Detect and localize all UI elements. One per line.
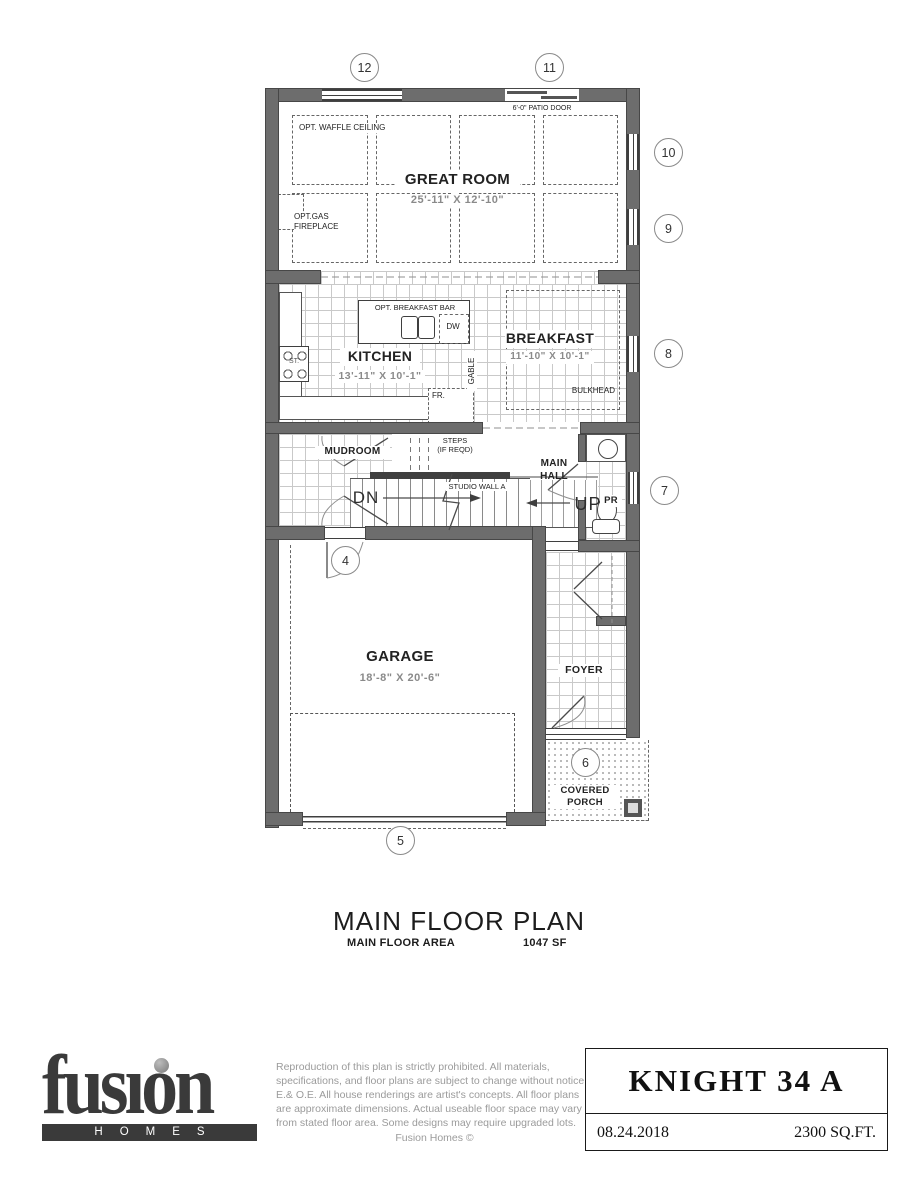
wall-mudroom-bottom-a: [265, 526, 325, 540]
great-room-opening-floor: [321, 271, 598, 284]
garage-column-line: [290, 545, 291, 710]
patio-door-label: 6'-0" PATIO DOOR: [500, 105, 584, 114]
plan-sqft: 2300 SQ.FT.: [794, 1124, 876, 1142]
wall-mudroom-bottom-b: [365, 526, 546, 540]
foyer-label: FOYER: [558, 664, 610, 677]
wall-garage-right: [532, 526, 546, 826]
wall-great-room-bottom-right: [598, 270, 640, 284]
logo-homes-bar: HOMES: [42, 1124, 257, 1141]
callout-12: 12: [350, 53, 379, 82]
copyright-text: Fusion Homes ©: [276, 1132, 593, 1146]
model-title-block: KNIGHT 34 A 08.24.2018 2300 SQ.FT.: [585, 1048, 888, 1151]
wall-garage-bottom-right: [506, 812, 546, 826]
kitchen-label: KITCHEN: [340, 348, 420, 366]
dishwasher-label: DW: [439, 322, 467, 332]
kitchen-bottom-counter: [279, 396, 430, 420]
wall-closet-stub: [596, 616, 626, 626]
floor-plan-sheet: ST. FR. OPT. BREAKFAST BAR DW: [0, 0, 918, 1188]
pr-sink: [598, 439, 618, 459]
stove-label: ST.: [280, 358, 308, 367]
logo-dot-icon: [154, 1058, 169, 1073]
disclaimer-text: Reproduction of this plan is strictly pr…: [276, 1061, 593, 1131]
callout-4: 4: [331, 546, 360, 575]
hall-foyer-threshold: [546, 541, 578, 551]
wall-great-room-bottom-left: [265, 270, 321, 284]
patio-door-opening: [505, 89, 579, 101]
wall-right: [626, 88, 640, 738]
kitchen-dims: 13'-11" X 10'-1": [335, 370, 425, 383]
callout-5: 5: [386, 826, 415, 855]
wall-kitchen-bottom-right: [580, 422, 640, 434]
mudroom-label: MUDROOM: [315, 446, 390, 459]
garage-label: GARAGE: [355, 648, 445, 667]
kitchen-side-counter: [279, 292, 302, 398]
wall-kitchen-bottom-left: [265, 422, 483, 434]
great-room-dims: 25'-11" X 12'-10": [400, 194, 515, 208]
porch-post: [624, 799, 642, 817]
garage-door-headroom-outline: [290, 713, 515, 812]
garage-door-opening: [303, 813, 506, 825]
breakfast-dims: 11'-10" X 10'-1": [506, 351, 594, 364]
fridge-label: FR.: [432, 391, 452, 401]
waffle-ceiling-cell: [543, 115, 619, 185]
gable-label: GABLE: [467, 351, 477, 391]
optional-steps-dashes: [402, 434, 430, 472]
breakfast-label: BREAKFAST: [505, 330, 595, 348]
main-hall-label: MAIN HALL: [534, 458, 574, 483]
logo-wordmark: fusıon: [42, 1043, 211, 1128]
dn-label: DN: [350, 487, 382, 508]
gas-fireplace-label: OPT.GAS FIREPLACE: [294, 212, 344, 232]
pr-toilet-tank: [592, 519, 620, 534]
fusion-homes-logo: fusıon HOMES: [42, 1046, 257, 1144]
great-room-label: GREAT ROOM: [395, 171, 520, 190]
disclaimer-block: Reproduction of this plan is strictly pr…: [276, 1061, 593, 1146]
pr-label: PR: [600, 495, 622, 507]
callout-9: 9: [654, 214, 683, 243]
breakfast-bar-label: OPT. BREAKFAST BAR: [359, 303, 471, 312]
wall-pr-left-upper: [578, 434, 586, 462]
sink-basin-right: [418, 316, 435, 339]
callout-11: 11: [535, 53, 564, 82]
foyer-porch-threshold: [546, 728, 626, 740]
wall-pr-bottom: [578, 540, 640, 552]
callout-8: 8: [654, 339, 683, 368]
foyer-floor: [546, 552, 626, 728]
waffle-ceiling-cell: [543, 193, 619, 263]
window-8: [627, 336, 639, 372]
mudroom-garage-door-opening: [325, 527, 365, 539]
patio-door-panel: [541, 96, 577, 99]
garage-dims: 18'-8" X 20'-6": [352, 672, 448, 686]
waffle-ceiling-label: OPT. WAFFLE CEILING: [299, 123, 411, 133]
wall-left: [265, 88, 279, 828]
plan-date: 08.24.2018: [597, 1124, 669, 1142]
window-7: [628, 472, 639, 504]
wall-garage-bottom-left: [265, 812, 303, 826]
window-12: [322, 89, 402, 101]
sink-basin-left: [401, 316, 418, 339]
covered-porch-label: COVERED PORCH: [552, 785, 618, 809]
callout-7: 7: [650, 476, 679, 505]
window-9: [627, 209, 639, 245]
model-name: KNIGHT 34 A: [586, 1049, 887, 1113]
steps-label: STEPS (IF REQD): [432, 436, 478, 455]
window-10: [627, 134, 639, 170]
plan-title: MAIN FLOOR PLAN: [0, 906, 918, 937]
kitchen-island: OPT. BREAKFAST BAR DW: [358, 300, 470, 344]
floor-area-label: MAIN FLOOR AREA: [347, 937, 455, 949]
studio-wall: [370, 472, 510, 479]
patio-door-panel: [507, 91, 547, 94]
studio-wall-label: STUDIO WALL A: [446, 482, 508, 491]
bulkhead-label: BULKHEAD: [560, 386, 615, 396]
floor-area-value: 1047 SF: [523, 937, 567, 949]
callout-10: 10: [654, 138, 683, 167]
callout-6: 6: [571, 748, 600, 777]
